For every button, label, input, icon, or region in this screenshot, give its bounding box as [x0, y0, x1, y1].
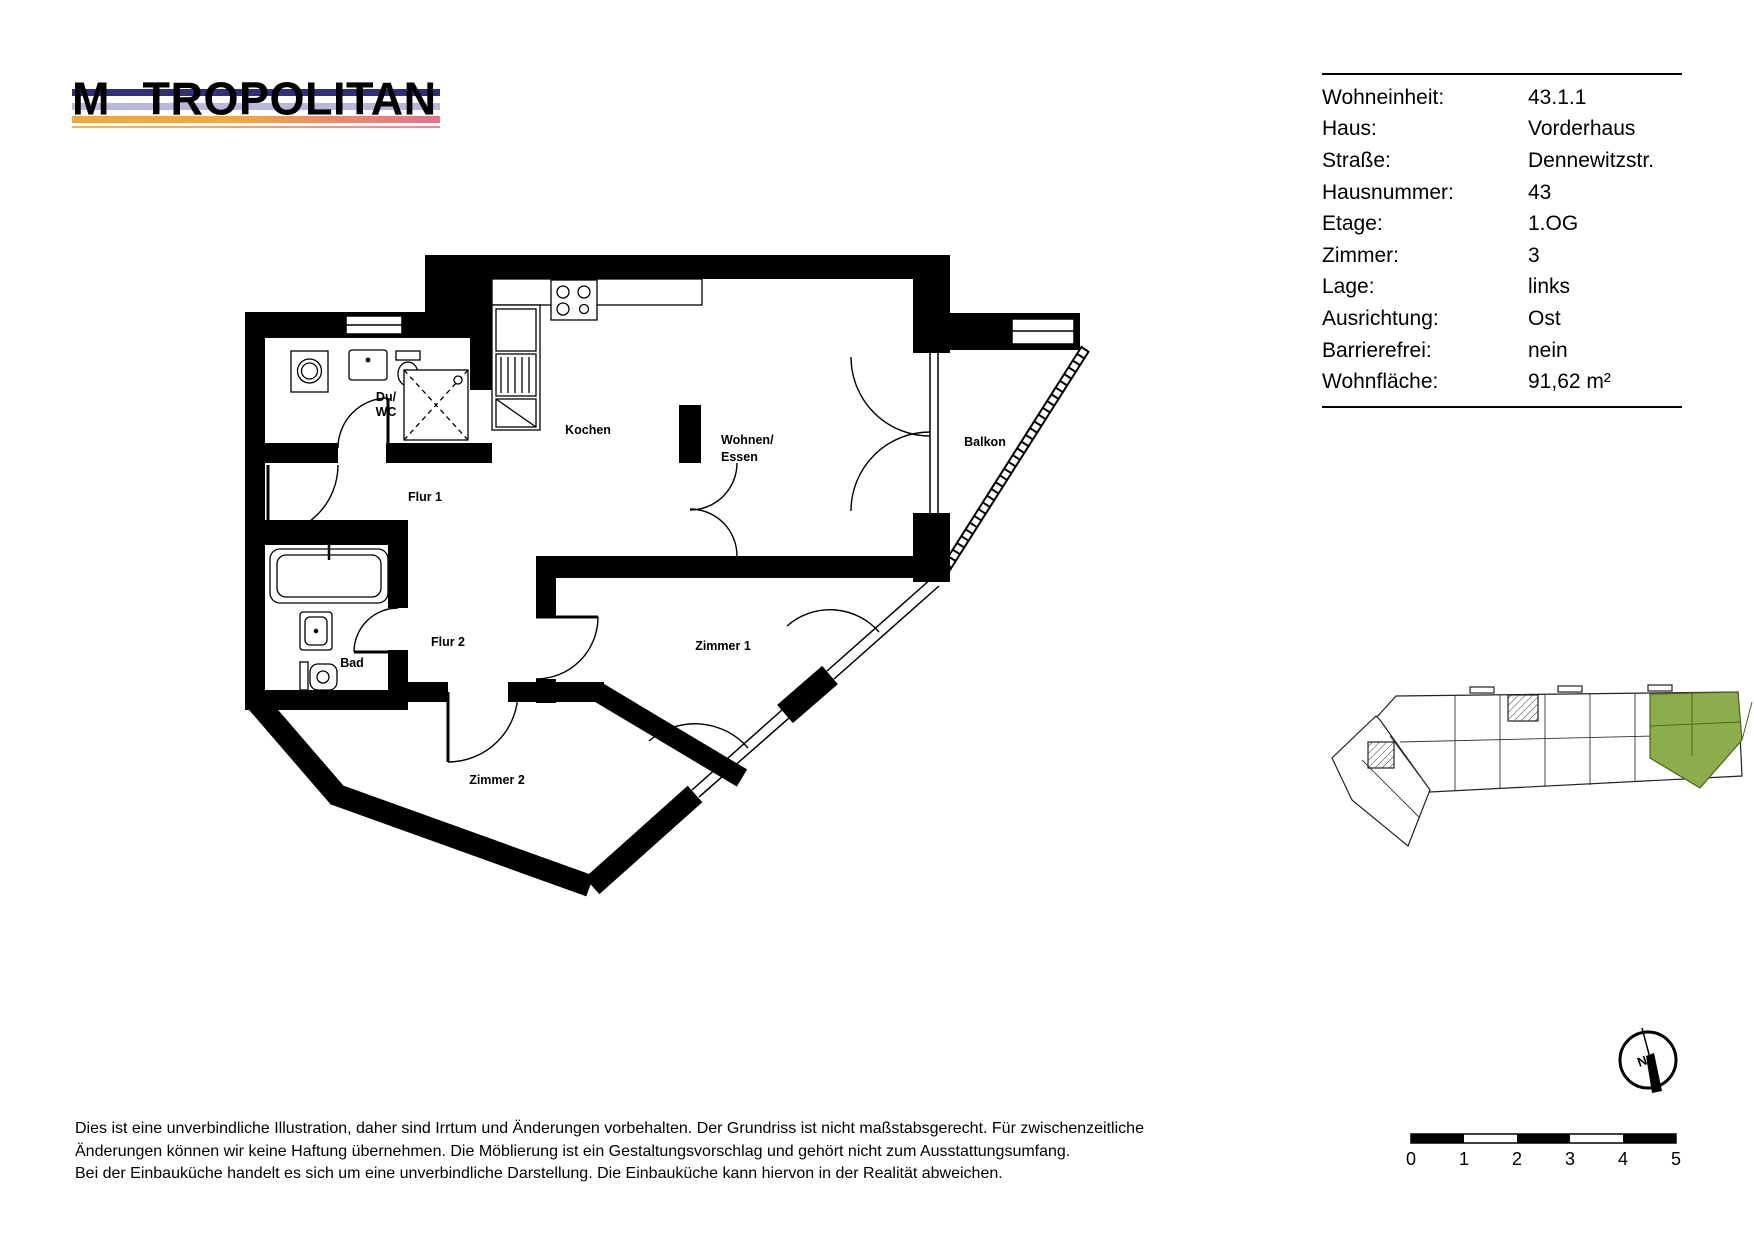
room-label-essen: Essen	[721, 450, 758, 464]
compass-north-label: N	[1635, 1053, 1649, 1070]
floorplan-page: { "logo": { "prefix": "M", "rest": "TROP…	[0, 0, 1754, 1240]
disclaimer-line-1: Dies ist eine unverbindliche Illustratio…	[75, 1118, 1285, 1141]
balcony-railing	[936, 346, 1089, 581]
scale-tick: 1	[1459, 1149, 1469, 1169]
scale-bar: 0 1 2 3 4 5	[1406, 1134, 1681, 1169]
disclaimer-text: Dies ist eine unverbindliche Illustratio…	[75, 1118, 1285, 1186]
room-label-du-wc: Du/	[376, 390, 397, 404]
room-label-balkon: Balkon	[964, 435, 1006, 449]
disclaimer-line-3: Bei der Einbauküche handelt es sich um e…	[75, 1163, 1285, 1186]
north-compass: N	[1620, 1028, 1676, 1093]
scale-tick: 5	[1671, 1149, 1681, 1169]
room-label-du-wc: WC	[376, 405, 397, 419]
floorplan-drawing: Du/ WC Kochen Wohnen/ Essen Balkon Flur …	[0, 0, 1754, 1240]
scale-tick: 4	[1618, 1149, 1628, 1169]
room-label-flur1: Flur 1	[408, 490, 442, 504]
room-label-kochen: Kochen	[565, 423, 611, 437]
disclaimer-line-2: Änderungen können wir keine Haftung über…	[75, 1141, 1285, 1164]
scale-tick: 3	[1565, 1149, 1575, 1169]
building-overview-map	[1332, 685, 1752, 846]
kitchen-fixtures	[492, 279, 702, 430]
room-label-flur2: Flur 2	[431, 635, 465, 649]
room-label-zimmer2: Zimmer 2	[469, 773, 525, 787]
room-label-zimmer1: Zimmer 1	[695, 639, 751, 653]
scale-tick: 0	[1406, 1149, 1416, 1169]
room-label-wohnen: Wohnen/	[721, 433, 774, 447]
scale-tick: 2	[1512, 1149, 1522, 1169]
room-label-bad: Bad	[340, 656, 364, 670]
